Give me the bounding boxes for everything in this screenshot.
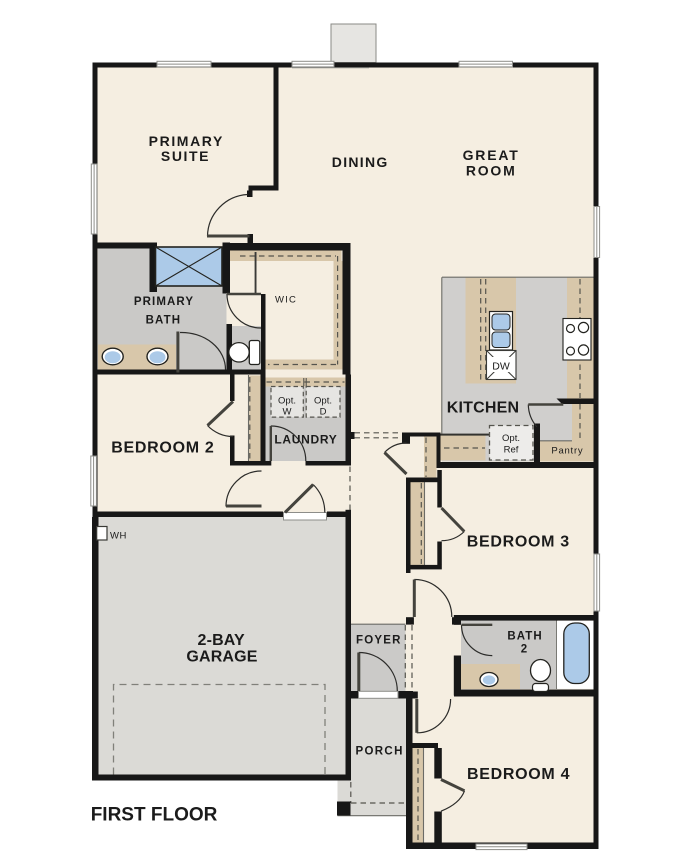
svg-text:BATH: BATH [146, 315, 182, 327]
svg-text:SUITE: SUITE [161, 148, 210, 164]
svg-text:2: 2 [521, 643, 529, 655]
svg-text:DW: DW [492, 361, 510, 373]
svg-text:Opt.: Opt. [502, 433, 520, 444]
svg-text:PRIMARY: PRIMARY [149, 133, 224, 149]
svg-text:BEDROOM 2: BEDROOM 2 [111, 440, 214, 457]
svg-text:BEDROOM 4: BEDROOM 4 [467, 766, 570, 783]
svg-text:FOYER: FOYER [356, 635, 402, 647]
svg-text:Opt.: Opt. [314, 396, 332, 407]
svg-text:WIC: WIC [275, 295, 297, 306]
svg-text:GARAGE: GARAGE [186, 648, 257, 665]
svg-text:FIRST FLOOR: FIRST FLOOR [91, 805, 218, 826]
svg-text:ROOM: ROOM [466, 163, 517, 179]
svg-text:W: W [283, 407, 292, 418]
svg-text:BEDROOM 3: BEDROOM 3 [467, 534, 570, 551]
svg-text:GREAT: GREAT [463, 147, 520, 163]
svg-text:DINING: DINING [332, 154, 389, 170]
svg-text:PRIMARY: PRIMARY [134, 296, 194, 308]
svg-text:D: D [320, 407, 327, 418]
svg-text:PORCH: PORCH [355, 746, 403, 758]
svg-text:LAUNDRY: LAUNDRY [274, 432, 337, 446]
svg-text:2-BAY: 2-BAY [198, 632, 245, 649]
svg-text:Pantry: Pantry [551, 446, 583, 457]
svg-text:BATH: BATH [507, 630, 543, 642]
svg-text:Opt.: Opt. [278, 396, 296, 407]
svg-text:Ref: Ref [504, 445, 519, 456]
svg-text:WH: WH [110, 530, 127, 541]
svg-text:KITCHEN: KITCHEN [447, 400, 520, 417]
